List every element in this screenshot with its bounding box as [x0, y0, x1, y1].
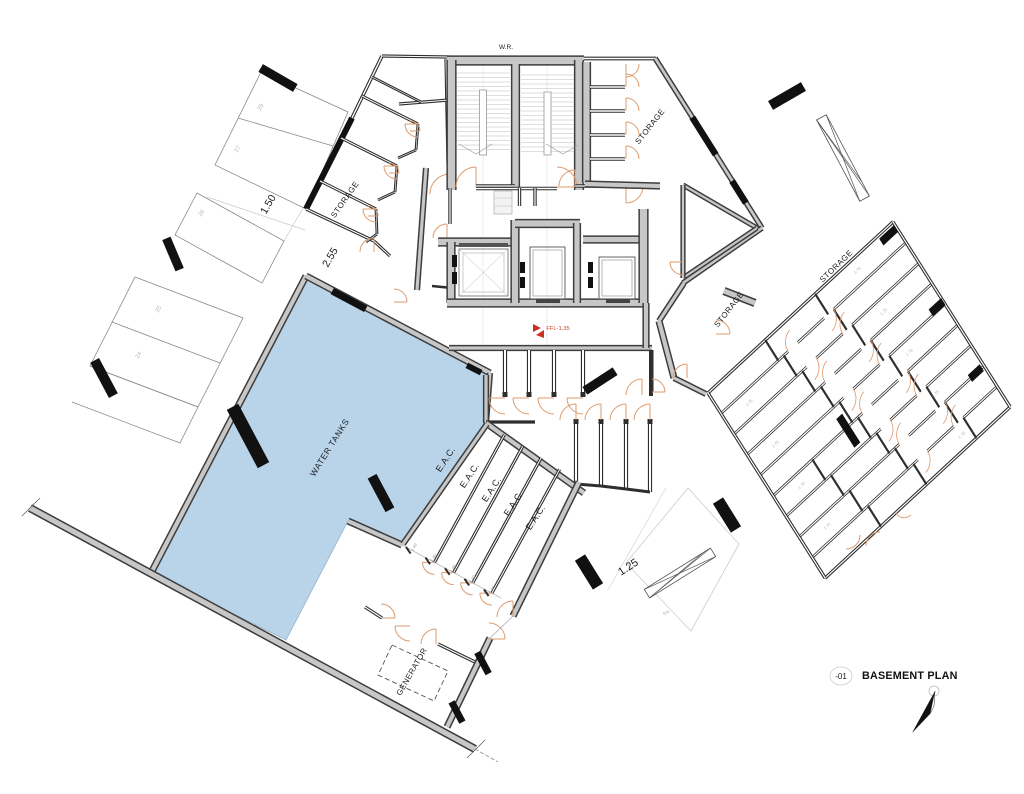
svg-text:BASEMENT PLAN: BASEMENT PLAN [862, 670, 958, 682]
svg-text:FFL-1.35: FFL-1.35 [546, 326, 570, 332]
svg-text:W.R.: W.R. [499, 44, 513, 51]
svg-text:-01: -01 [835, 672, 847, 681]
